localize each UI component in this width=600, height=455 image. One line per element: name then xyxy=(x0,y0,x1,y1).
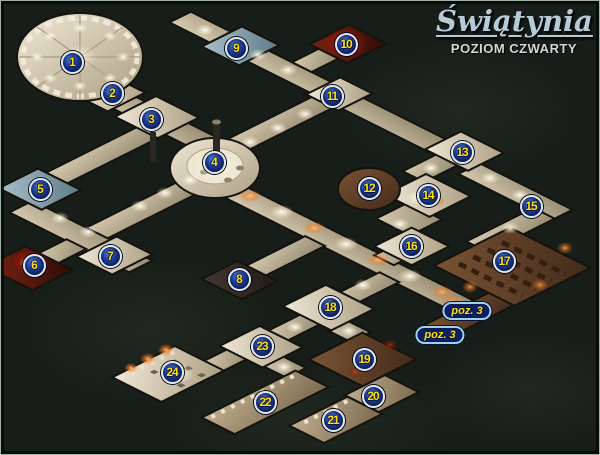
map-marker-number: 18 xyxy=(324,300,335,314)
map-marker-5: 5 xyxy=(29,178,52,201)
map-marker-number: 4 xyxy=(211,155,217,169)
map-marker-number: 14 xyxy=(422,188,433,202)
map-marker-number: 10 xyxy=(340,37,351,51)
map-marker-number: 15 xyxy=(525,199,536,213)
map-marker-number: 11 xyxy=(327,89,338,103)
map-marker-number: 22 xyxy=(259,395,270,409)
map-marker-3: 3 xyxy=(140,108,163,131)
page-subtitle: POZIOM CZWARTY xyxy=(436,41,592,56)
map-marker-number: 7 xyxy=(107,249,113,263)
map-marker-4: 4 xyxy=(203,151,226,174)
map-screenshot: 123456789101112131415161718192021222324p… xyxy=(0,0,600,455)
page-title: Świątynia xyxy=(436,6,592,36)
map-marker-number: 20 xyxy=(367,389,378,403)
exit-label-poz3-2: poz. 3 xyxy=(415,326,464,344)
map-marker-number: 6 xyxy=(31,258,37,272)
map-marker-21: 21 xyxy=(322,409,345,432)
map-marker-17: 17 xyxy=(493,250,516,273)
map-marker-number: 24 xyxy=(166,365,177,379)
map-marker-number: 12 xyxy=(363,181,374,195)
map-marker-number: 8 xyxy=(236,272,242,286)
dungeon-map xyxy=(0,0,600,455)
map-marker-number: 3 xyxy=(148,112,154,126)
map-marker-number: 5 xyxy=(37,182,43,196)
map-marker-14: 14 xyxy=(417,184,440,207)
map-marker-12: 12 xyxy=(358,177,381,200)
map-marker-9: 9 xyxy=(225,37,248,60)
exit-label-poz3-1: poz. 3 xyxy=(442,302,491,320)
hub-pillar-2 xyxy=(150,132,156,162)
map-marker-number: 17 xyxy=(498,254,509,268)
map-marker-23: 23 xyxy=(251,335,274,358)
map-marker-number: 1 xyxy=(69,55,75,69)
map-marker-18: 18 xyxy=(319,296,342,319)
map-marker-number: 13 xyxy=(456,145,467,159)
map-marker-2: 2 xyxy=(101,82,124,105)
map-marker-7: 7 xyxy=(99,245,122,268)
map-marker-1: 1 xyxy=(61,51,84,74)
map-marker-13: 13 xyxy=(451,141,474,164)
map-marker-8: 8 xyxy=(228,268,251,291)
map-marker-11: 11 xyxy=(321,85,344,108)
map-marker-number: 9 xyxy=(233,41,239,55)
map-marker-10: 10 xyxy=(335,33,358,56)
map-marker-number: 16 xyxy=(405,239,416,253)
map-marker-16: 16 xyxy=(400,235,423,258)
map-marker-number: 19 xyxy=(358,352,369,366)
map-marker-15: 15 xyxy=(520,195,543,218)
map-marker-19: 19 xyxy=(353,348,376,371)
map-marker-number: 2 xyxy=(109,86,115,100)
map-marker-number: 21 xyxy=(327,413,338,427)
map-marker-number: 23 xyxy=(256,339,267,353)
map-marker-6: 6 xyxy=(23,254,46,277)
map-marker-20: 20 xyxy=(362,385,385,408)
map-marker-22: 22 xyxy=(254,391,277,414)
title-block: Świątynia POZIOM CZWARTY xyxy=(436,6,592,56)
map-marker-24: 24 xyxy=(161,361,184,384)
